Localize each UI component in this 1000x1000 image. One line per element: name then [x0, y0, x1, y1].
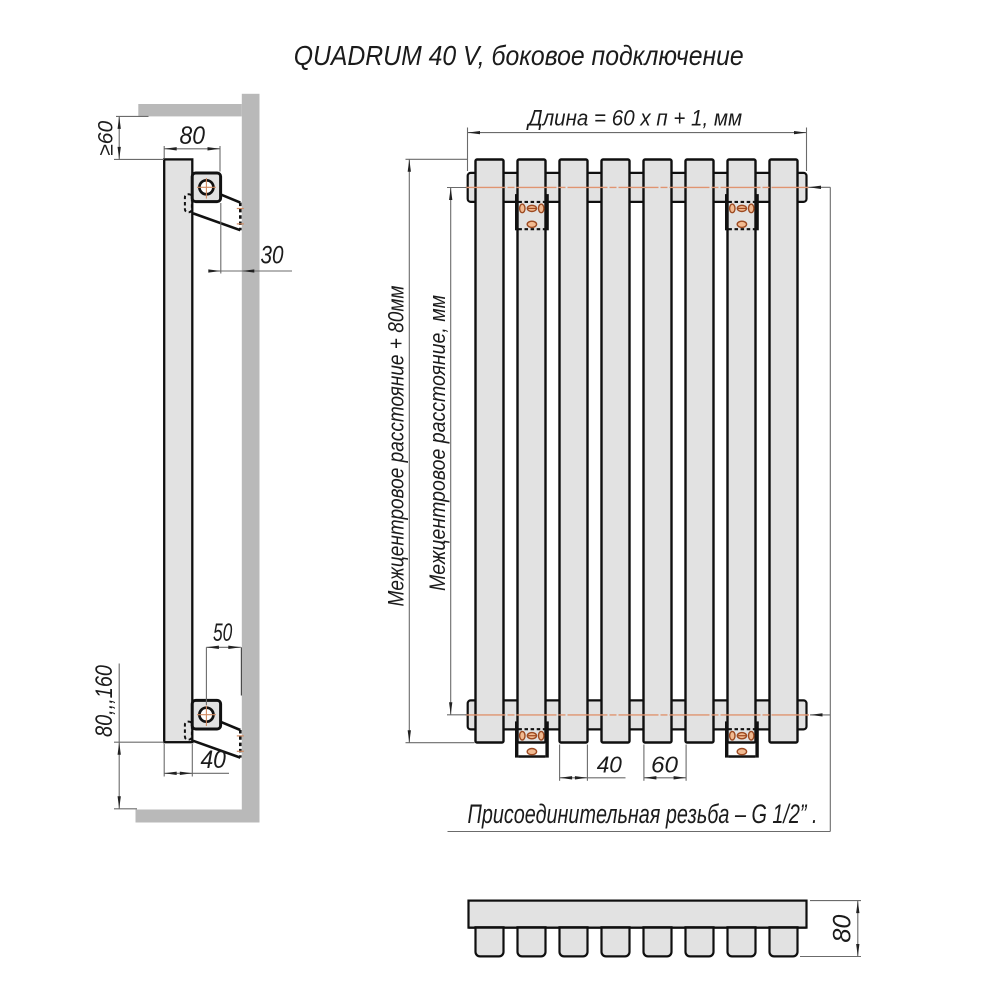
svg-text:Межцентровое расстояние, мм: Межцентровое расстояние, мм [425, 295, 450, 591]
svg-text:50: 50 [213, 619, 232, 647]
svg-text:60: 60 [651, 752, 678, 778]
svg-text:40: 40 [597, 752, 622, 778]
svg-text:QUADRUM 40 V, боковое подключе: QUADRUM 40 V, боковое подключение [294, 40, 744, 71]
svg-text:80: 80 [829, 915, 857, 943]
svg-text:Присоединительная резьба – G 1: Присоединительная резьба – G 1/2” . [468, 799, 818, 829]
svg-text:80: 80 [180, 122, 206, 150]
svg-text:Межцентровое расстояние + 80мм: Межцентровое расстояние + 80мм [384, 286, 409, 607]
svg-text:≥60: ≥60 [94, 120, 117, 155]
svg-text:30: 30 [261, 242, 284, 270]
svg-text:Длина = 60 х п + 1, мм: Длина = 60 х п + 1, мм [525, 106, 742, 131]
svg-text:40: 40 [200, 746, 226, 774]
svg-text:80,,,160: 80,,,160 [91, 665, 118, 737]
